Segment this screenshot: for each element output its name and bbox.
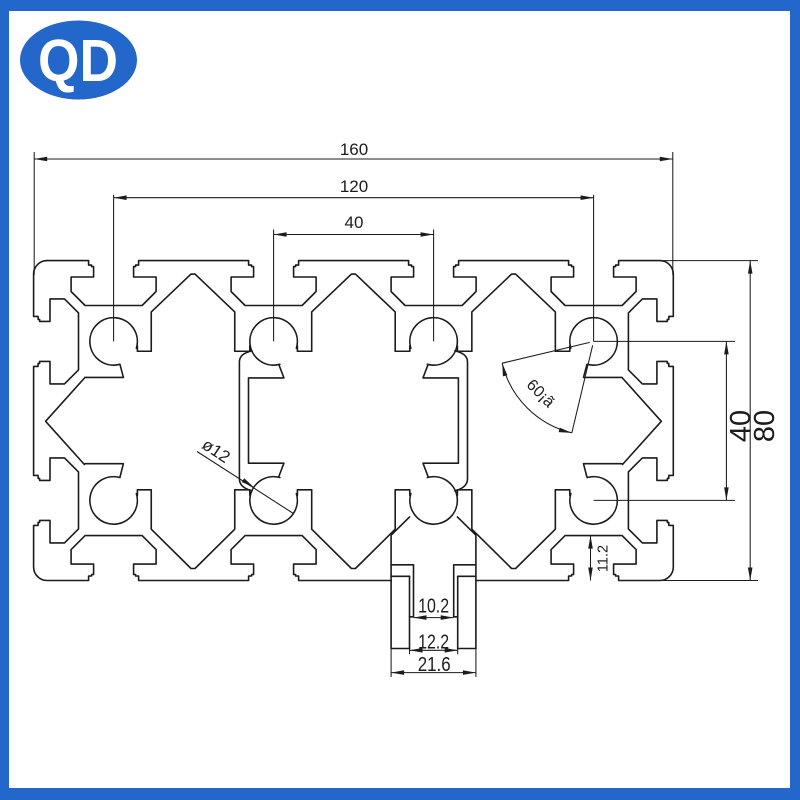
svg-text:10.2: 10.2 (418, 596, 449, 618)
svg-text:120: 120 (340, 177, 368, 196)
svg-text:40: 40 (345, 213, 364, 232)
svg-text:21.6: 21.6 (418, 654, 451, 676)
svg-text:160: 160 (340, 140, 368, 159)
svg-text:12.2: 12.2 (418, 632, 449, 654)
svg-text:QD: QD (38, 28, 118, 94)
svg-text:40: 40 (725, 410, 757, 442)
svg-text:11.2: 11.2 (596, 545, 612, 572)
